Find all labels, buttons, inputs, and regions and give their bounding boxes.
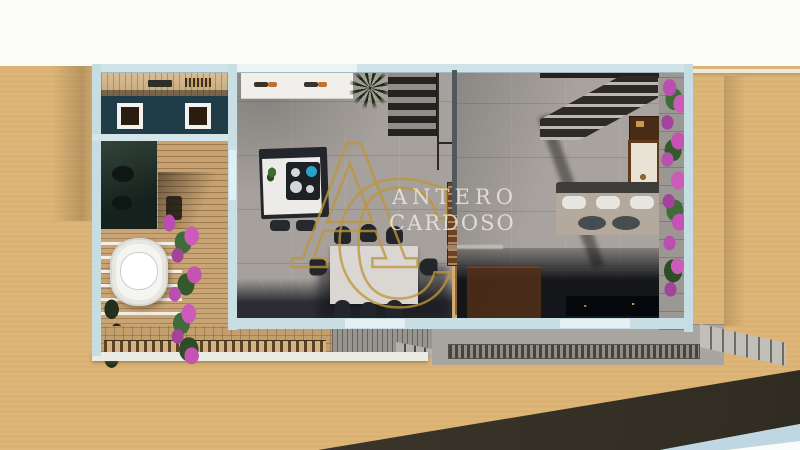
bougainvillea-planter-left xyxy=(158,210,214,372)
deck-edge-wall xyxy=(92,352,428,361)
shelf-item xyxy=(636,121,644,127)
pergola-slat-detail xyxy=(185,78,211,87)
sofa-pillow xyxy=(562,196,586,209)
patio-chair xyxy=(112,196,132,210)
sofa-pillow xyxy=(596,196,620,209)
east-wall xyxy=(684,64,693,332)
sink-fixture xyxy=(254,82,268,87)
island-plant xyxy=(265,166,279,182)
sink-fixture xyxy=(304,82,318,87)
boundary-wall-highlight xyxy=(688,69,800,73)
entry-doormat xyxy=(148,80,172,87)
north-wall xyxy=(92,64,692,73)
sink-faucet-copper xyxy=(268,82,277,87)
watermark-name-line2: CARDOSO xyxy=(389,213,516,234)
drain-grating xyxy=(448,344,700,359)
carport-glass-roof xyxy=(101,141,157,229)
sliding-door-glass xyxy=(229,150,236,200)
skylight xyxy=(117,103,143,129)
ottoman xyxy=(612,216,640,230)
south-window xyxy=(560,319,630,328)
entry-dividing-wall xyxy=(92,134,235,141)
sink-faucet-copper xyxy=(318,82,327,87)
tv-unit xyxy=(566,296,662,316)
west-wall xyxy=(92,64,101,356)
media-cabinet xyxy=(467,266,541,318)
watermark-name-line1: ANTERO xyxy=(392,187,518,208)
sofa-pillow xyxy=(630,196,654,209)
console-detail xyxy=(638,172,648,182)
north-window xyxy=(237,64,357,72)
watermark-subtitle-strip xyxy=(447,245,503,249)
floorplan-render: A C ANTERO CARDOSO xyxy=(0,0,800,450)
ottoman xyxy=(578,216,606,230)
bar-stool xyxy=(270,220,290,231)
house-shadow-right xyxy=(724,76,746,326)
patio-chair xyxy=(112,166,134,182)
bathtub-basin xyxy=(120,252,158,290)
skylight xyxy=(185,103,211,129)
